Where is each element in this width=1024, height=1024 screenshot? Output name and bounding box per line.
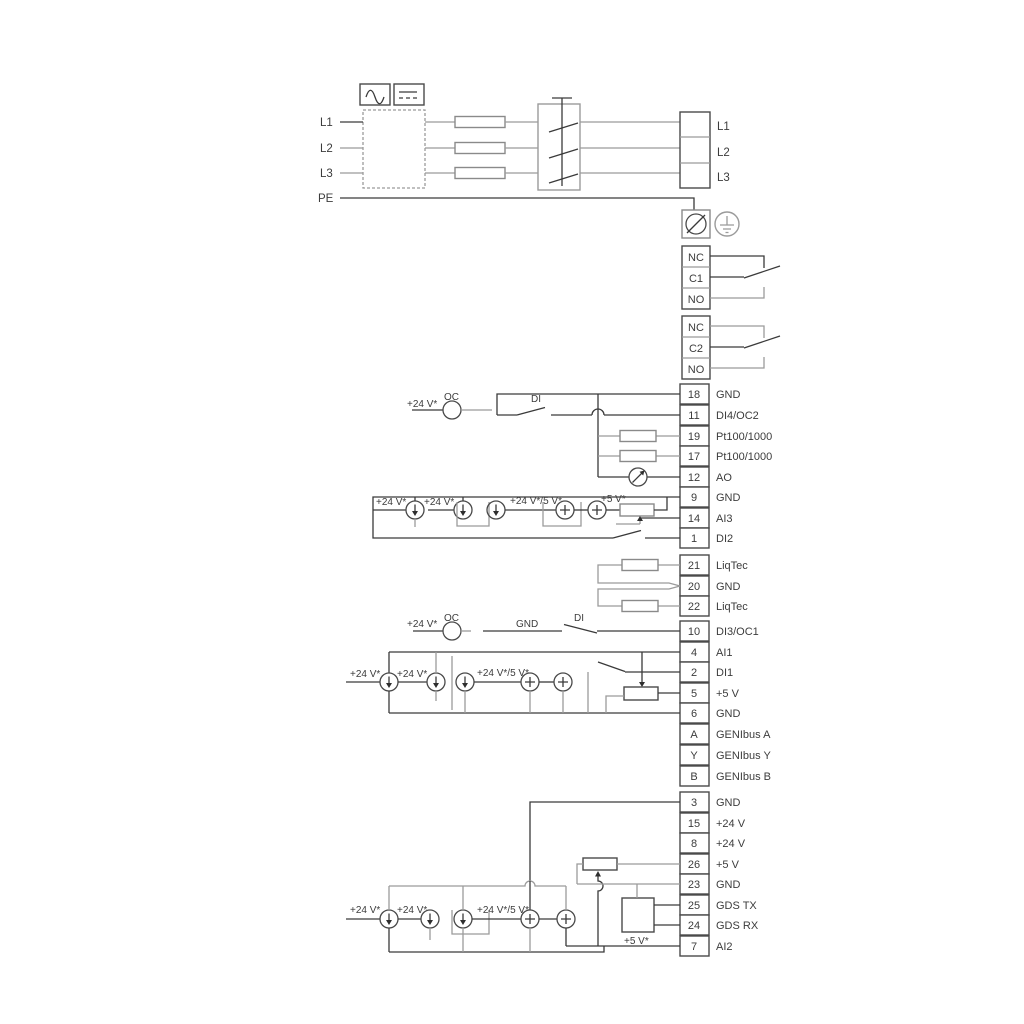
terminal-label: LiqTec xyxy=(716,560,748,572)
relay-2: NC C2 NO xyxy=(682,316,780,379)
voltage-annotation: +24 V*/5 V* xyxy=(477,668,529,679)
di-switch xyxy=(497,408,592,416)
terminal-group-1: 18GND 11DI4/OC2 19Pt100/1000 17Pt100/100… xyxy=(680,384,772,548)
voltage-annotation: +24 V* xyxy=(407,619,437,630)
earth-symbol xyxy=(715,212,739,236)
voltage-source-icon xyxy=(557,910,575,928)
terminal-group-2: 21LiqTec 20GND 22LiqTec xyxy=(598,555,748,616)
terminal-number: 20 xyxy=(688,581,700,593)
wiper-wire xyxy=(598,875,603,946)
terminal-label: Pt100/1000 xyxy=(716,451,772,463)
terminal-label: Pt100/1000 xyxy=(716,431,772,443)
current-source-icon xyxy=(456,673,474,691)
terminal-label: AO xyxy=(716,472,732,484)
terminal-label: GENIbus Y xyxy=(716,750,771,762)
phase-input-label: L2 xyxy=(320,143,333,155)
terminal-number: 14 xyxy=(688,513,700,525)
terminal-number: Y xyxy=(690,750,698,762)
terminal-row: 21LiqTec xyxy=(680,555,748,575)
di4-circuit: +24 V* OC DI xyxy=(407,392,680,486)
fuse xyxy=(455,143,505,154)
terminal-label: AI1 xyxy=(716,647,733,659)
voltage-source-icon xyxy=(521,673,539,691)
terminal-row: 1DI2 xyxy=(680,528,733,548)
pe-input-label: PE xyxy=(318,193,334,205)
wire xyxy=(389,881,566,886)
gds-module xyxy=(622,898,654,932)
wire xyxy=(654,905,680,925)
terminal-row: BGENIbus B xyxy=(680,766,771,786)
phase-input-label: L1 xyxy=(320,117,333,129)
output-terminal-block: L1 L2 L3 xyxy=(680,112,730,188)
ai3-circuit: +24 V* +24 V* +24 V*/5 V* xyxy=(373,494,680,538)
current-source-icon xyxy=(454,910,472,928)
terminal-label: +24 V xyxy=(716,838,746,850)
relay-1: NC C1 NO xyxy=(682,246,780,309)
terminal-number: 25 xyxy=(688,900,700,912)
voltage-annotation: +24 V* xyxy=(350,905,380,916)
terminal-number: 23 xyxy=(688,879,700,891)
terminal-number: 21 xyxy=(688,560,700,572)
dc-symbol xyxy=(394,84,424,105)
terminal-label: AI2 xyxy=(716,941,733,953)
voltage-source-icon xyxy=(556,501,574,519)
voltage-annotation: +24 V* xyxy=(397,669,427,680)
di-annotation: DI xyxy=(531,394,541,405)
terminal-row: 25GDS TX xyxy=(680,895,757,915)
terminal-number: 17 xyxy=(688,451,700,463)
wire xyxy=(616,520,640,524)
terminal-row: 12AO xyxy=(680,467,732,487)
phase-input-label: L3 xyxy=(320,168,333,180)
wire xyxy=(436,691,563,713)
terminal-row: 20GND xyxy=(680,576,741,596)
terminal-label: GND xyxy=(716,797,741,809)
voltage-annotation: +24 V* xyxy=(424,497,454,508)
terminal-label: GND xyxy=(716,708,741,720)
liqtec-sensor-resistor xyxy=(622,560,658,571)
current-source-icon xyxy=(421,910,439,928)
terminal-number: 15 xyxy=(688,818,700,830)
terminal-number: 8 xyxy=(691,838,697,850)
pt-sensor-resistor xyxy=(620,431,656,442)
terminal-number: 10 xyxy=(688,626,700,638)
wire xyxy=(580,122,680,173)
pe-wire xyxy=(340,198,694,210)
terminal-row: 26+5 V xyxy=(680,854,740,874)
terminal-label: +5 V xyxy=(716,859,740,871)
terminal-number: 26 xyxy=(688,859,700,871)
terminal-row: 11DI4/OC2 xyxy=(680,405,759,425)
wire xyxy=(606,696,624,713)
terminal-label: DI3/OC1 xyxy=(716,626,759,638)
terminal-row: 6GND xyxy=(680,703,741,723)
wire xyxy=(425,122,455,173)
liqtec-sensor-resistor xyxy=(622,601,658,612)
terminal-number: 4 xyxy=(691,647,697,659)
terminal-number: 3 xyxy=(691,797,697,809)
open-collector-icon xyxy=(443,401,461,419)
terminal-label: +5 V xyxy=(716,688,740,700)
voltage-annotation: +24 V* xyxy=(350,669,380,680)
relay-terminal-label: NC xyxy=(688,322,704,334)
current-source-icon xyxy=(427,673,445,691)
main-switch xyxy=(538,98,580,190)
terminal-row: 8+24 V xyxy=(680,833,746,853)
di3-circuit: +24 V* OC GND DI xyxy=(407,613,680,640)
ai1-circuit: +24 V* +24 V* +24 V*/5 V* xyxy=(346,652,680,713)
wiring-diagram: L1 L2 L3 PE xyxy=(0,0,1024,1024)
terminal-label: GDS TX xyxy=(716,900,757,912)
relay-terminal-label: NC xyxy=(688,252,704,264)
potentiometer xyxy=(620,504,654,516)
terminal-row: 3GND xyxy=(680,792,741,812)
di2-switch xyxy=(613,531,680,539)
terminal-label: GENIbus B xyxy=(716,771,771,783)
terminal-row: 4AI1 xyxy=(680,642,733,662)
ac-symbol xyxy=(360,84,390,105)
terminal-row: 9GND xyxy=(680,487,741,507)
terminal-label: GND xyxy=(716,879,741,891)
phase-output-label: L2 xyxy=(717,147,730,159)
terminal-label: DI4/OC2 xyxy=(716,410,759,422)
terminal-row: 22LiqTec xyxy=(680,596,748,616)
wire xyxy=(497,394,680,415)
wiper-arrow xyxy=(595,871,601,877)
current-source-icon xyxy=(487,501,505,519)
wire xyxy=(592,409,680,415)
terminal-row: 18GND xyxy=(680,384,741,404)
di-switch xyxy=(483,625,680,634)
voltage-source-icon xyxy=(554,673,572,691)
terminal-row: 10DI3/OC1 xyxy=(680,621,759,641)
gnd-annotation: GND xyxy=(516,619,538,630)
voltage-annotation: +24 V*/5 V* xyxy=(510,496,562,507)
relay-contact xyxy=(710,287,764,298)
terminal-label: GND xyxy=(716,389,741,401)
terminal-row: 14AI3 xyxy=(680,508,733,528)
terminal-number: B xyxy=(690,771,697,783)
terminal-label: GDS RX xyxy=(716,920,759,932)
relay-contact xyxy=(710,266,780,278)
current-source-icon xyxy=(380,673,398,691)
voltage-annotation: +5 V* xyxy=(624,936,649,947)
terminal-label: AI3 xyxy=(716,513,733,525)
ao-meter-icon xyxy=(629,468,647,486)
terminal-number: 19 xyxy=(688,431,700,443)
terminal-row: 5+5 V xyxy=(680,683,740,703)
terminal-number: 12 xyxy=(688,472,700,484)
terminal-group-4: 3GND 15+24 V 8+24 V 26+5 V 23GND 25GDS T… xyxy=(680,792,759,956)
wire xyxy=(505,122,538,173)
power-section: L1 L2 L3 PE xyxy=(318,84,739,238)
di-annotation: DI xyxy=(574,613,584,624)
terminal-row: 2DI1 xyxy=(680,662,733,682)
phase-output-label: L1 xyxy=(717,121,730,133)
relay-contact xyxy=(710,326,764,338)
terminal-number: 11 xyxy=(688,410,699,422)
potentiometer xyxy=(583,858,617,870)
voltage-source-icon xyxy=(521,910,539,928)
terminal-row: YGENIbus Y xyxy=(680,745,771,765)
terminal-label: GENIbus A xyxy=(716,729,771,741)
terminal-label: GND xyxy=(716,581,741,593)
potentiometer xyxy=(624,687,658,700)
terminal-row: 17Pt100/1000 xyxy=(680,446,772,466)
fuse xyxy=(455,117,505,128)
fuse xyxy=(455,168,505,179)
terminal-row: 15+24 V xyxy=(680,813,746,833)
terminal-number: 24 xyxy=(688,920,700,932)
relay-contact xyxy=(710,336,780,348)
terminal-row: 24GDS RX xyxy=(680,915,759,935)
relay-terminal-label: NO xyxy=(688,294,705,306)
terminal-row: 7AI2 xyxy=(680,936,733,956)
current-source-icon xyxy=(380,910,398,928)
terminal-number: 5 xyxy=(691,688,697,700)
voltage-annotation: +24 V* xyxy=(376,497,406,508)
current-source-icon xyxy=(406,501,424,519)
wire xyxy=(430,928,530,952)
relay-contact xyxy=(710,256,764,268)
terminal-row: 19Pt100/1000 xyxy=(680,426,772,446)
terminal-number: 18 xyxy=(688,389,700,401)
terminal-label: DI1 xyxy=(716,667,733,679)
terminal-number: A xyxy=(690,729,698,741)
open-collector-icon xyxy=(443,622,461,640)
terminal-number: 1 xyxy=(691,533,697,545)
wire xyxy=(389,928,604,952)
phase-output-label: L3 xyxy=(717,172,730,184)
wiper-arrow xyxy=(639,682,645,687)
option-bracket xyxy=(457,502,489,526)
relay-terminal-label: C1 xyxy=(689,273,703,285)
relay-terminal-label: NO xyxy=(688,364,705,376)
terminal-number: 6 xyxy=(691,708,697,720)
pe-terminal xyxy=(682,210,710,238)
terminal-number: 9 xyxy=(691,492,697,504)
terminal-number: 2 xyxy=(691,667,697,679)
terminal-label: +24 V xyxy=(716,818,746,830)
di1-switch xyxy=(598,662,680,672)
rfi-filter-box xyxy=(363,110,425,188)
relay-contact xyxy=(710,357,764,368)
voltage-annotation: +24 V* xyxy=(407,399,437,410)
pt-sensor-resistor xyxy=(620,451,656,462)
terminal-row: AGENIbus A xyxy=(680,724,771,744)
relay-terminal-label: C2 xyxy=(689,343,703,355)
wire xyxy=(577,864,583,884)
terminal-label: GND xyxy=(716,492,741,504)
wire xyxy=(389,652,680,673)
terminal-number: 22 xyxy=(688,601,700,613)
ai2-gds-circuit: +24 V* +24 V* +24 V*/5 V* xyxy=(346,802,680,952)
wire xyxy=(654,497,667,510)
terminal-number: 7 xyxy=(691,941,697,953)
terminal-label: LiqTec xyxy=(716,601,748,613)
terminal-group-3: 10DI3/OC1 4AI1 2DI1 5+5 V 6GND AGENIbus … xyxy=(680,621,771,786)
voltage-annotation: +24 V*/5 V* xyxy=(477,905,529,916)
terminal-row: 23GND xyxy=(680,874,741,894)
terminal-label: DI2 xyxy=(716,533,733,545)
